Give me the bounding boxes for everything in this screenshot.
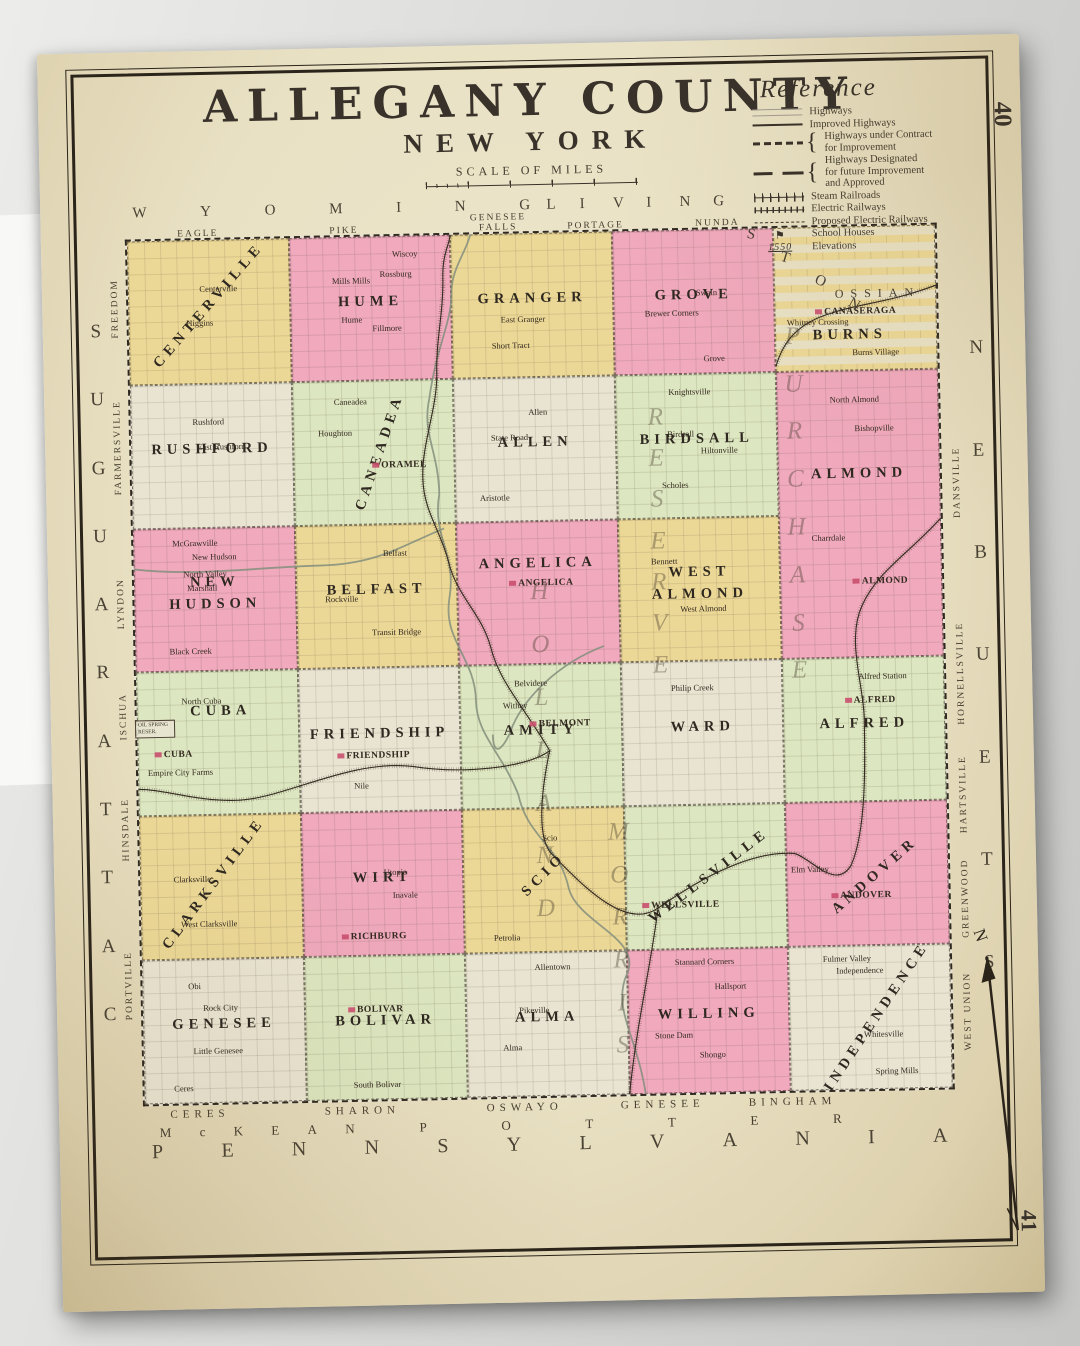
letter: U bbox=[976, 644, 990, 666]
township-name: GROVE bbox=[654, 284, 733, 307]
township-name: HUME bbox=[338, 291, 404, 314]
letter: Y bbox=[200, 204, 211, 221]
legend-label: Elevations bbox=[812, 240, 857, 252]
county-label-livingston-letter: I bbox=[580, 196, 585, 213]
township-name: GRANGER bbox=[477, 287, 587, 311]
allegany-county-area: OIL SPRING RESER. CENTERVILLECenterville… bbox=[125, 223, 955, 1107]
village-label: Swain bbox=[696, 288, 717, 297]
village-label: Burns Village bbox=[852, 347, 899, 356]
township-label-sharon: SHARON bbox=[325, 1104, 400, 1118]
village-label: Belfast bbox=[383, 549, 407, 558]
village-label: Bennett bbox=[651, 557, 678, 566]
village-label: Grove bbox=[703, 353, 724, 362]
village-label: Houghton bbox=[318, 429, 352, 438]
township-label-greenwood: GREENWOOD bbox=[960, 859, 972, 938]
letter: M bbox=[160, 1125, 172, 1141]
legend-item: {Highways Designated for future Improvem… bbox=[753, 152, 982, 191]
school-symbol: ⚑ bbox=[755, 229, 805, 241]
village-label: Wiscoy bbox=[392, 249, 418, 258]
letter: K bbox=[234, 1123, 244, 1139]
letter: V bbox=[650, 1131, 665, 1154]
village-label: North Valley bbox=[183, 569, 227, 578]
village-label: Wellsville bbox=[642, 900, 720, 911]
village-label: Hume bbox=[341, 316, 362, 325]
compass-north-arrow: N bbox=[971, 912, 1030, 1243]
township-name: ANGELICA bbox=[478, 552, 597, 576]
township-label-oswayo: OSWAYO bbox=[487, 1101, 563, 1115]
village-label: Withey bbox=[503, 701, 528, 710]
village-label: West Clarksville bbox=[181, 919, 237, 929]
township-label-ceres: CERES bbox=[170, 1108, 229, 1121]
letter: T bbox=[585, 1116, 593, 1132]
township-name: ALMOND bbox=[811, 462, 907, 486]
letter: N bbox=[345, 1121, 355, 1137]
village-label: Higgins bbox=[186, 319, 213, 328]
village-label: Andover bbox=[831, 891, 892, 902]
township-name: GENESEE bbox=[172, 1013, 276, 1037]
letter: S bbox=[437, 1135, 449, 1158]
letter: I bbox=[396, 200, 401, 217]
village-label: East Granger bbox=[501, 315, 546, 324]
legend-label: Highways bbox=[809, 105, 852, 117]
shongo-railroad-ticks bbox=[626, 908, 662, 1094]
contract-symbol bbox=[753, 142, 803, 146]
letter: I bbox=[868, 1126, 875, 1149]
letter: E bbox=[972, 439, 984, 461]
letter: E bbox=[221, 1140, 234, 1163]
township-label-dansville: DANSVILLE bbox=[951, 447, 962, 519]
highways-symbol bbox=[752, 109, 802, 117]
village-label: Cuba bbox=[155, 750, 193, 760]
village-label: Caneadea bbox=[334, 397, 367, 406]
letter: O bbox=[265, 202, 276, 219]
village-label: Fulmer Valley bbox=[823, 953, 871, 963]
village-label: Brewer Corners bbox=[645, 309, 699, 319]
village-label: Marshall bbox=[187, 584, 217, 593]
letter: U bbox=[90, 389, 104, 411]
elevation-symbol: 1550 bbox=[755, 242, 805, 254]
village-label: Friendship bbox=[337, 751, 410, 762]
map-content: ALLEGANY COUNTY NEW YORK SCALE OF MILES … bbox=[80, 64, 1004, 1252]
letter: S bbox=[90, 321, 101, 343]
letter: T bbox=[101, 867, 113, 889]
village-label: Scio bbox=[542, 833, 557, 842]
village-label: South Bolivar bbox=[354, 1080, 402, 1089]
letter: W bbox=[132, 205, 147, 222]
legend-label: Electric Railways bbox=[811, 202, 886, 215]
county-map: WYOMING LIVINGSTONEAGLEPIKEGENESEE FALLS… bbox=[84, 188, 1002, 1166]
village-label: Alfred Station bbox=[858, 671, 907, 681]
electric-symbol bbox=[754, 207, 804, 214]
letter: M bbox=[329, 201, 343, 218]
village-label: Spring Mills bbox=[876, 1066, 919, 1075]
village-label: Empire City Farms bbox=[148, 767, 213, 777]
village-label: West Almond bbox=[680, 604, 726, 613]
rivers-and-railroads-overlay bbox=[127, 225, 953, 1105]
village-label: Short Tract bbox=[492, 341, 530, 350]
county-label-livingston-letter: I bbox=[646, 195, 651, 212]
letter: R bbox=[96, 662, 109, 684]
reference-title: Reference bbox=[760, 72, 981, 105]
township-label-ossian: OSSIAN bbox=[835, 285, 921, 302]
page-number-top: 40 bbox=[988, 101, 1017, 127]
township-label-hornellsville: HORNELLSVILLE bbox=[955, 621, 967, 724]
village-label: Inavale bbox=[393, 890, 418, 899]
village-label: Scholes bbox=[662, 481, 689, 490]
village-label: Whitney Crossing bbox=[787, 317, 849, 327]
village-label: East Rushford bbox=[197, 442, 246, 452]
legend-label: Proposed Electric Railways bbox=[811, 214, 927, 228]
village-label: Rushford bbox=[192, 417, 224, 426]
village-label: Allentown bbox=[535, 963, 571, 972]
letter: T bbox=[981, 849, 993, 871]
letter: O bbox=[501, 1118, 511, 1134]
township-label-ischua: ISCHUA bbox=[118, 693, 129, 741]
village-label: Knightsville bbox=[668, 387, 710, 396]
village-label: Bolivar bbox=[348, 1005, 404, 1016]
letter: A bbox=[933, 1125, 948, 1148]
village-label: Shongo bbox=[700, 1050, 726, 1059]
village-label: Philip Creek bbox=[671, 683, 714, 692]
reference-legend: Reference HighwaysImproved Highways{High… bbox=[752, 72, 984, 255]
letter: A bbox=[722, 1129, 737, 1152]
township-name: ALFRED bbox=[819, 712, 909, 736]
letter: Y bbox=[507, 1134, 522, 1157]
letter: A bbox=[94, 594, 108, 616]
village-label: Charrdale bbox=[812, 533, 846, 542]
scale-bar bbox=[426, 178, 638, 190]
village-label: Transit Bridge bbox=[372, 628, 421, 638]
township-label-pike: PIKE bbox=[329, 227, 358, 238]
letter: N bbox=[795, 1127, 810, 1150]
village-label: Almond bbox=[853, 577, 908, 588]
township-name: WEST ALMOND bbox=[651, 561, 748, 607]
village-label: Utopia bbox=[384, 867, 407, 876]
letter: R bbox=[833, 1111, 842, 1127]
village-label: Aristotle bbox=[480, 493, 510, 502]
village-label: Elm Valley bbox=[791, 864, 829, 873]
village-label: North Cuba bbox=[181, 696, 221, 705]
village-label: Oramel bbox=[372, 461, 427, 472]
brace: { bbox=[806, 163, 818, 182]
village-label: Clarksville bbox=[174, 874, 211, 883]
legend-label: Steam Railroads bbox=[811, 190, 880, 203]
north-label: N bbox=[971, 926, 991, 944]
village-label: Rock City bbox=[203, 1004, 238, 1013]
township-label-bingham: BINGHAM bbox=[749, 1095, 837, 1109]
letter: T bbox=[100, 799, 112, 821]
village-label: Fillmore bbox=[372, 323, 401, 332]
village-label: Hallsport bbox=[715, 982, 747, 991]
village-label: Angelica bbox=[509, 579, 573, 590]
village-label: Belmont bbox=[530, 719, 591, 730]
township-label-hinsdale: HINSDALE bbox=[121, 797, 132, 861]
township-label-hartsville: HARTSVILLE bbox=[958, 755, 970, 833]
letter: A bbox=[102, 936, 116, 958]
village-label: Little Genesee bbox=[193, 1046, 242, 1056]
village-label: Pikeville bbox=[519, 1006, 549, 1015]
village-label: Stannard Corners bbox=[675, 956, 734, 966]
legend-label: Improved Highways bbox=[809, 117, 895, 130]
township-label-nunda: NUNDA bbox=[695, 219, 740, 230]
township-label-genesee-falls: GENESEE FALLS bbox=[467, 213, 529, 234]
township-label-lyndon: LYNDON bbox=[116, 578, 127, 629]
village-label: Allen bbox=[528, 407, 547, 416]
county-label-livingston-letter: G bbox=[712, 193, 724, 211]
village-label: Ceres bbox=[174, 1084, 194, 1093]
proposed-symbol bbox=[755, 222, 805, 224]
township-name: BURNS bbox=[812, 324, 887, 347]
village-label: Whitesville bbox=[864, 1029, 903, 1038]
village-label: New Hudson bbox=[192, 552, 237, 561]
photo-backdrop: 40 41 N ALLEGANY COUNTY NEW YORK SCALE O… bbox=[0, 0, 1080, 1346]
village-label: Nile bbox=[354, 781, 369, 790]
county-label-livingston-letter: V bbox=[613, 195, 624, 212]
letter: N bbox=[455, 198, 466, 215]
letter: P bbox=[152, 1141, 164, 1164]
legend-item: {Highways under Contract for Improvement bbox=[753, 128, 981, 156]
township-label-freedom: FREEDOM bbox=[110, 279, 121, 339]
letter: A bbox=[97, 731, 111, 753]
future-symbol bbox=[754, 172, 804, 175]
brace: { bbox=[806, 133, 818, 152]
village-label: Belvidere bbox=[514, 678, 547, 687]
township-name: FRIENDSHIP bbox=[310, 722, 450, 747]
township-name: WARD bbox=[670, 716, 735, 739]
reference-items: HighwaysImproved Highways{Highways under… bbox=[752, 103, 983, 254]
legend-label: Highways under Contract for Improvement bbox=[824, 129, 932, 154]
steam-symbol bbox=[754, 192, 804, 202]
township-label-portage: PORTAGE bbox=[567, 221, 624, 232]
village-label: Bishopville bbox=[854, 423, 893, 432]
village-label: Richburg bbox=[342, 932, 407, 943]
oil-spring-reservation: OIL SPRING RESER. bbox=[135, 720, 175, 739]
letter: N bbox=[969, 337, 983, 359]
village-label: Alfred bbox=[845, 696, 896, 707]
village-label: McGrawville bbox=[172, 538, 217, 547]
township-name: WILLING bbox=[658, 1003, 760, 1027]
village-label: Birdsall bbox=[667, 430, 694, 439]
improved-symbol bbox=[753, 124, 803, 127]
letter: C bbox=[103, 1004, 116, 1026]
village-label: North Almond bbox=[830, 395, 880, 405]
letter: E bbox=[271, 1123, 279, 1139]
village-label: Independence bbox=[836, 966, 883, 975]
village-label: Black Creek bbox=[170, 646, 212, 655]
letter: B bbox=[974, 542, 987, 564]
village-label: State Road bbox=[491, 433, 528, 442]
township-label-genesee: GENESEE bbox=[621, 1098, 705, 1112]
township-label-portville: PORTVILLE bbox=[124, 951, 135, 1020]
letter: L bbox=[579, 1132, 592, 1155]
township-label-eagle: EAGLE bbox=[177, 230, 218, 241]
map-sheet: 40 41 N ALLEGANY COUNTY NEW YORK SCALE O… bbox=[37, 34, 1045, 1312]
village-label: Hiltonville bbox=[701, 446, 738, 455]
letter: E bbox=[750, 1113, 758, 1129]
county-label-livingston-letter: N bbox=[679, 194, 690, 211]
village-label: Alma bbox=[503, 1043, 522, 1052]
letter: c bbox=[199, 1124, 205, 1140]
legend-label: School Houses bbox=[812, 227, 875, 240]
county-label-livingston-letter: L bbox=[546, 197, 556, 214]
letter: N bbox=[292, 1138, 307, 1161]
township-label-farmersville: FARMERSVILLE bbox=[112, 400, 124, 495]
letter: A bbox=[307, 1122, 317, 1138]
village-label: Obi bbox=[188, 982, 201, 991]
village-label: Rossburg bbox=[379, 269, 411, 278]
shongo-railroad bbox=[626, 908, 662, 1094]
village-label: Centerville bbox=[199, 284, 237, 293]
letter: N bbox=[364, 1136, 379, 1159]
village-label: Stone Dam bbox=[655, 1031, 693, 1040]
letter: E bbox=[979, 747, 991, 769]
letter: G bbox=[92, 458, 106, 480]
village-label: Mills Mills bbox=[332, 276, 370, 285]
letter: U bbox=[93, 526, 107, 548]
village-label: Petrolia bbox=[494, 933, 521, 942]
letter: T bbox=[668, 1114, 676, 1130]
village-label: Rockville bbox=[325, 595, 358, 604]
legend-label: Highways Designated for future Improveme… bbox=[825, 153, 925, 190]
letter: P bbox=[419, 1119, 427, 1135]
